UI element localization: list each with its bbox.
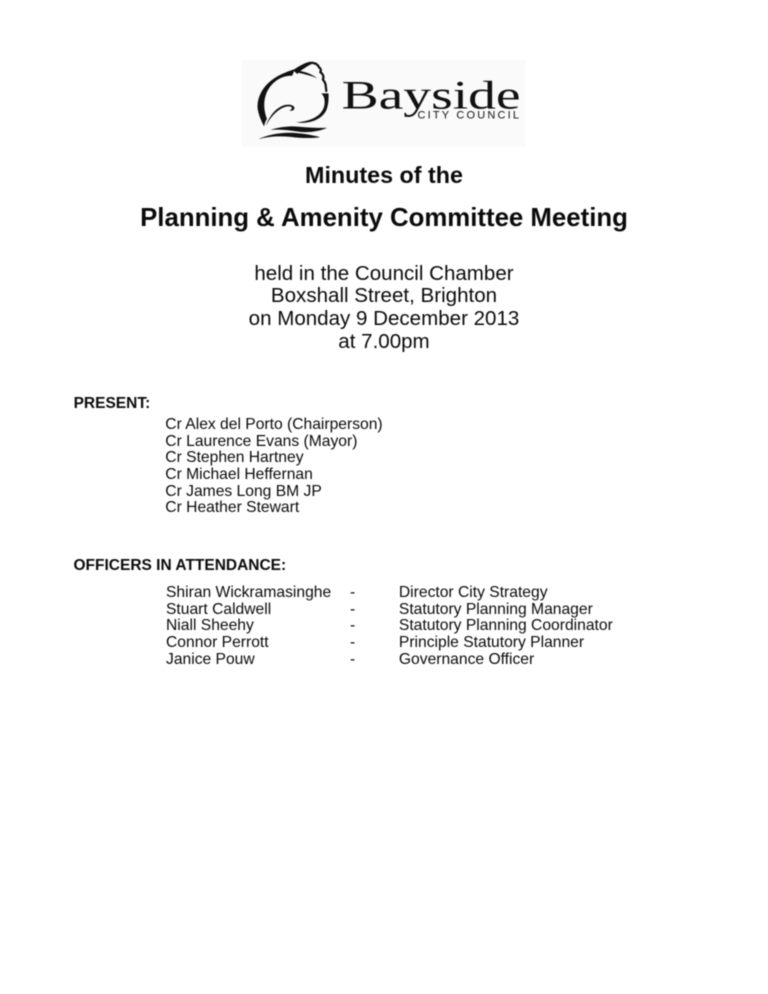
- svg-text:CITY COUNCIL: CITY COUNCIL: [418, 110, 520, 122]
